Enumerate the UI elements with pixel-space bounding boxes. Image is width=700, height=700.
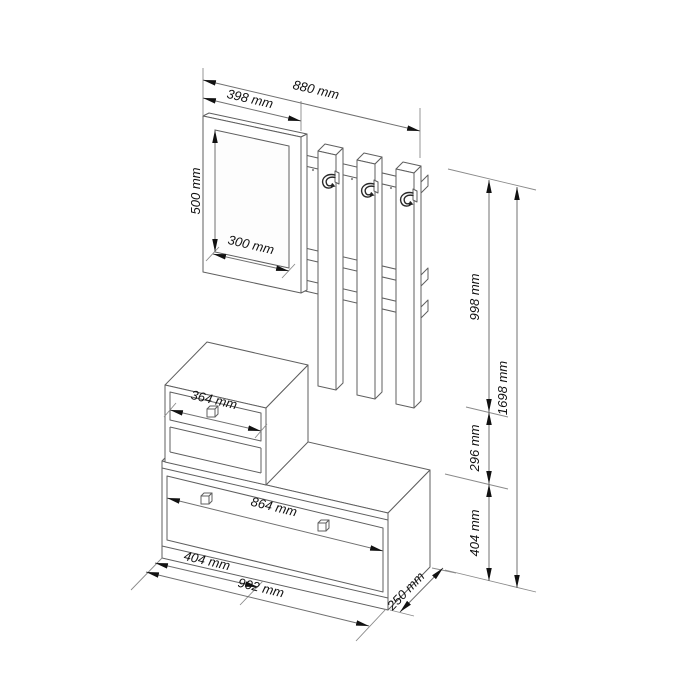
dim-label-panel-width: 398 mm	[225, 86, 274, 111]
dim-label-gap-height: 296 mm	[467, 424, 482, 472]
screw-dot	[312, 169, 314, 171]
door-knob	[318, 520, 329, 531]
extension-line	[445, 570, 536, 592]
hook-slats	[312, 144, 421, 408]
dim-label-mirror-height: 500 mm	[188, 167, 203, 214]
extension-tick	[432, 568, 456, 573]
furniture-dimension-drawing: 880 mm 398 mm 500 mm 300 mm 998 mm 296 m…	[0, 0, 700, 700]
dim-label-bench-height: 404 mm	[467, 509, 482, 556]
extension-line	[131, 558, 162, 590]
technical-drawing-page: 880 mm 398 mm 500 mm 300 mm 998 mm 296 m…	[0, 0, 700, 700]
rail-end-face	[421, 300, 428, 318]
extension-line	[445, 474, 508, 489]
rail-end-face	[421, 175, 428, 193]
dim-label-total-width: 880 mm	[291, 77, 340, 102]
dim-label-upper-height: 998 mm	[467, 273, 482, 320]
door-knob	[201, 493, 212, 504]
panel-side-edge	[301, 134, 307, 293]
extension-line	[448, 169, 536, 190]
dim-label-total-height: 1698 mm	[495, 361, 510, 415]
extension-line	[356, 609, 386, 641]
rail-end-face	[421, 268, 428, 286]
screw-dot	[390, 187, 392, 189]
screw-dot	[351, 178, 353, 180]
mirror-panel	[203, 113, 307, 293]
